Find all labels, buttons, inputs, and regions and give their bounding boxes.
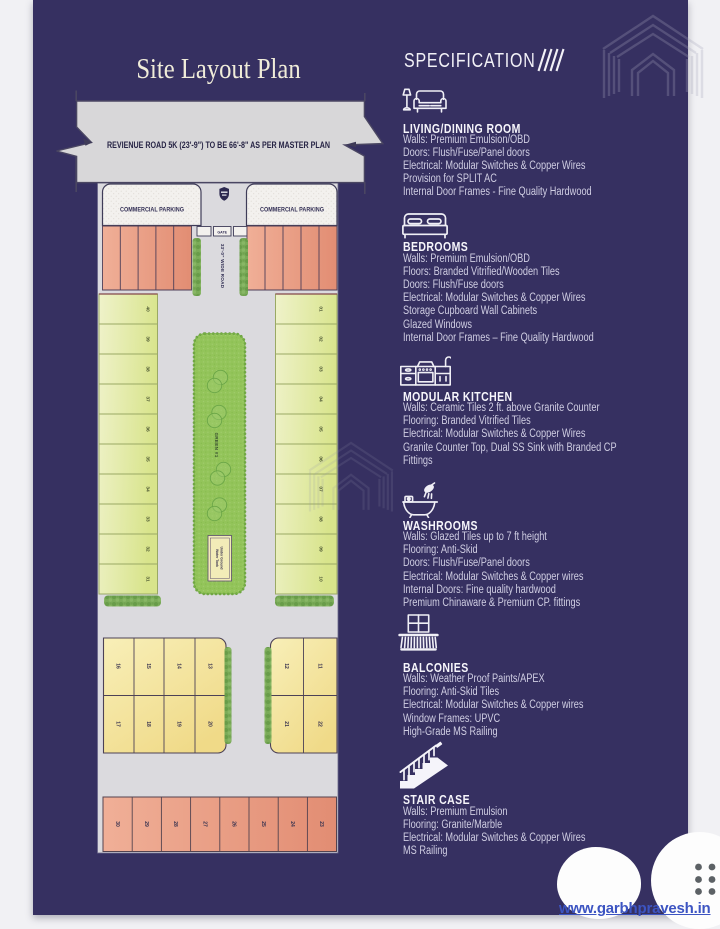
svg-text:COMMERCIAL PARKING: COMMERCIAL PARKING	[260, 207, 324, 214]
svg-text:37: 37	[144, 396, 150, 402]
svg-text:34: 34	[144, 486, 150, 492]
svg-text:Water Tank: Water Tank	[215, 549, 219, 567]
svg-text:REVIENUE ROAD 5K (23'-9") TO B: REVIENUE ROAD 5K (23'-9") TO BE 66'-8" A…	[107, 140, 330, 151]
svg-text:23: 23	[318, 821, 324, 827]
svg-text:25: 25	[260, 821, 266, 827]
svg-text:33'-0" WIDE ROAD: 33'-0" WIDE ROAD	[220, 244, 225, 289]
svg-text:21: 21	[283, 721, 289, 727]
svg-text:30: 30	[114, 821, 120, 827]
svg-text:35: 35	[144, 456, 150, 462]
svg-text:36: 36	[144, 426, 150, 432]
svg-text:26: 26	[231, 821, 237, 827]
svg-text:18: 18	[145, 721, 151, 727]
svg-text:39: 39	[144, 336, 150, 342]
svg-text:19: 19	[176, 721, 182, 727]
svg-text:22: 22	[317, 721, 323, 727]
svg-text:32: 32	[144, 546, 150, 552]
svg-text:09: 09	[317, 546, 323, 552]
svg-text:15: 15	[145, 663, 151, 669]
svg-text:31: 31	[144, 576, 150, 582]
svg-text:10: 10	[317, 576, 323, 582]
svg-text:02: 02	[317, 336, 323, 342]
svg-text:04: 04	[317, 396, 323, 402]
svg-text:Under Ground: Under Ground	[220, 547, 224, 570]
svg-text:GREEN #1: GREEN #1	[214, 432, 219, 457]
svg-text:GATE: GATE	[217, 231, 227, 235]
svg-text:33: 33	[144, 516, 150, 522]
svg-text:01: 01	[317, 306, 323, 312]
svg-text:40: 40	[144, 306, 150, 312]
svg-text:COMMERCIAL PARKING: COMMERCIAL PARKING	[120, 207, 184, 214]
svg-text:38: 38	[144, 366, 150, 372]
svg-text:12: 12	[283, 663, 289, 669]
svg-text:27: 27	[201, 821, 207, 827]
svg-text:11: 11	[317, 663, 323, 669]
svg-text:03: 03	[317, 366, 323, 372]
svg-text:16: 16	[115, 663, 121, 669]
svg-text:17: 17	[115, 721, 121, 727]
svg-text:28: 28	[172, 821, 178, 827]
svg-text:24: 24	[289, 821, 295, 827]
svg-text:29: 29	[143, 821, 149, 827]
svg-text:14: 14	[176, 663, 182, 669]
svg-text:20: 20	[207, 721, 213, 727]
svg-text:13: 13	[207, 663, 213, 669]
